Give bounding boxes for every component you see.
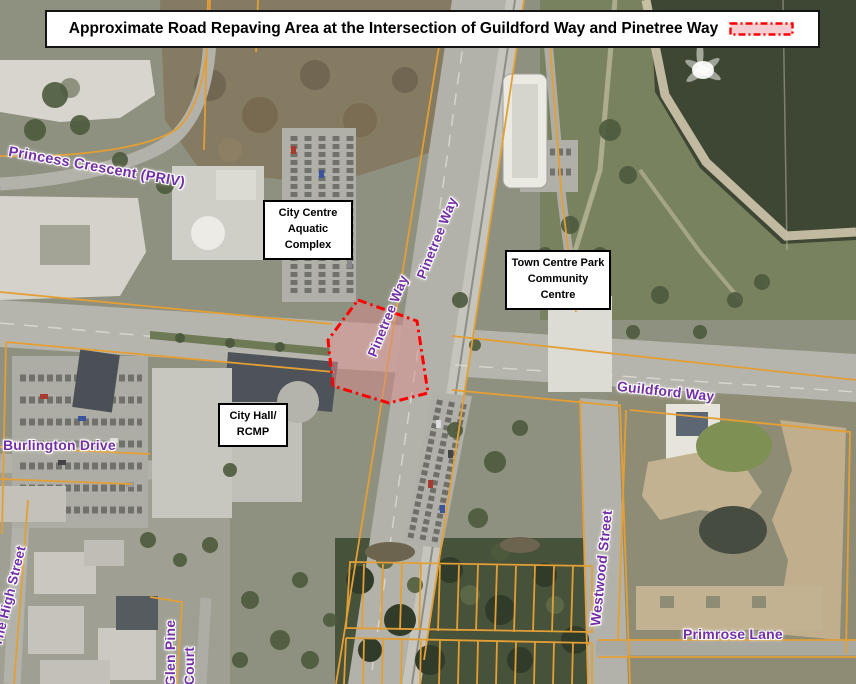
label-line: Complex [267,238,349,254]
label-line: Community [509,272,607,288]
repave-legend-rect [731,23,793,34]
aerial-basemap [0,0,856,684]
label-box-aquatic-complex: City Centre Aquatic Complex [263,200,353,260]
label-line: RCMP [222,425,284,441]
repave-legend-swatch [728,21,796,38]
street-label-burlington-drive: Burlington Drive [3,437,116,453]
street-label-primrose-lane: Primrose Lane [683,626,783,642]
street-label-glen-pine: Glen Pine [162,620,178,684]
map-page: Approximate Road Repaving Area at the In… [0,0,856,684]
label-line: Town Centre Park [509,256,607,272]
glen-pine-court-road [201,598,206,684]
street-label-court: Court [181,647,197,684]
map-title-bar: Approximate Road Repaving Area at the In… [45,10,820,48]
label-box-town-centre-park: Town Centre Park Community Centre [505,250,611,310]
map-title: Approximate Road Repaving Area at the In… [69,20,718,38]
community-centre-building [548,296,612,392]
label-line: City Centre [267,206,349,222]
label-line: City Hall/ [222,409,284,425]
label-box-city-hall-rcmp: City Hall/ RCMP [218,403,288,447]
label-line: Aquatic [267,222,349,238]
label-line: Centre [509,288,607,304]
